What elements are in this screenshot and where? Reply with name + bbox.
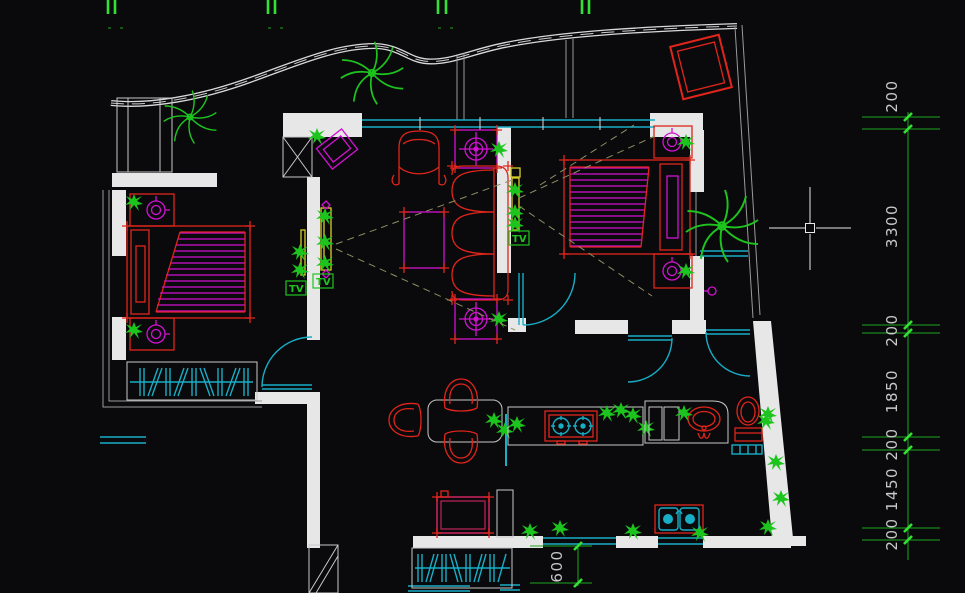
dim-label-200-c: 200 [883, 427, 901, 460]
dim-label-1850: 1850 [883, 369, 901, 413]
dim-label-1450: 1450 [883, 467, 901, 511]
tv-label: TV [289, 284, 304, 295]
dim-label-200-d: 200 [883, 517, 901, 550]
tv-label: TV [512, 234, 527, 245]
dim-label-200-a: 200 [883, 79, 901, 112]
cad-canvas[interactable]: TV TV [0, 0, 965, 593]
dim-label-600: 600 [548, 549, 566, 582]
tv-label: TV [316, 277, 331, 288]
dim-label-200-b: 200 [883, 313, 901, 346]
dim-label-3300: 3300 [883, 204, 901, 248]
